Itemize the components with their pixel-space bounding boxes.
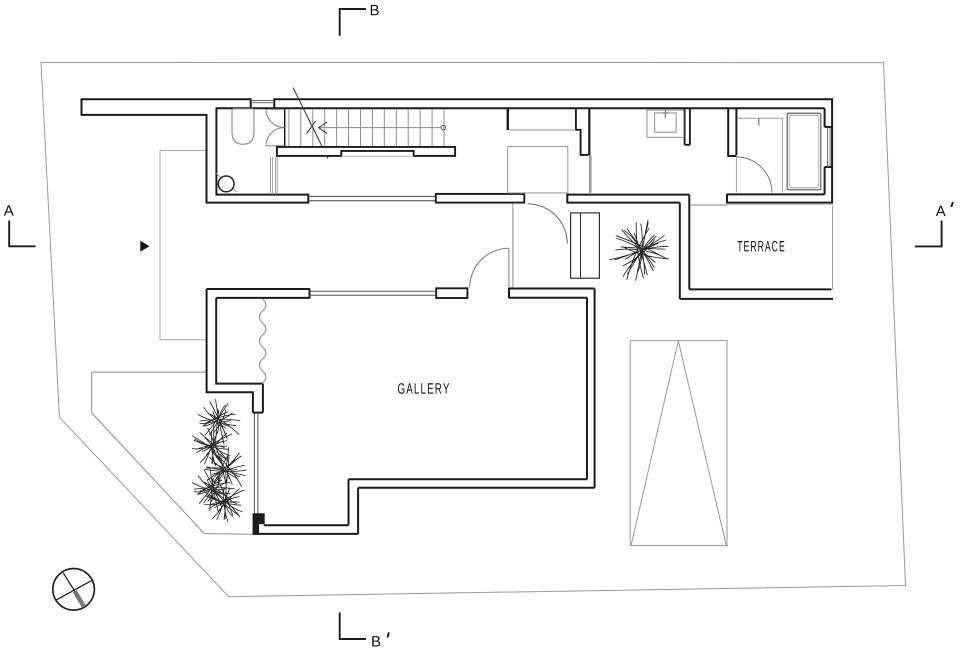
svg-text:B: B: [371, 634, 381, 649]
svg-text:A: A: [4, 203, 14, 220]
svg-text:A: A: [936, 203, 946, 220]
svg-text:TERRACE: TERRACE: [737, 238, 786, 255]
svg-text:GALLERY: GALLERY: [397, 381, 450, 398]
svg-text:B: B: [369, 2, 379, 19]
